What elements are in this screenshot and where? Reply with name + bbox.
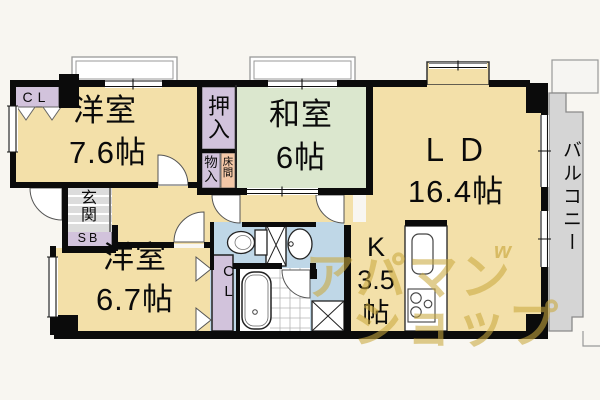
room-label-ld-size: 16.4帖 <box>378 174 534 210</box>
label-monoire: 物入 <box>202 156 220 184</box>
washer-pan-x-icon <box>312 301 344 331</box>
room-label-western2-size: 6.7帖 <box>60 282 210 318</box>
watermark-mark-icon: w <box>494 238 511 264</box>
watermark-line2: ショップ <box>352 300 560 350</box>
sliding-door-japanese-room <box>247 187 318 197</box>
label-entrance: 玄関 <box>78 191 100 225</box>
toilet-icon <box>228 230 268 255</box>
room-label-balcony: バルコニー <box>551 140 581 255</box>
room-label-japanese-name: 和室 <box>237 97 365 133</box>
bathtub-icon <box>242 272 271 329</box>
label-oshiire: 押入 <box>204 95 234 141</box>
label-tokonoma: 床間 <box>222 157 234 179</box>
room-label-western1-size: 7.6帖 <box>33 135 183 171</box>
room-label-japanese-size: 6帖 <box>237 140 365 176</box>
label-closet-lower: CL <box>207 263 237 303</box>
floor-plan-canvas: 洋室 7.6帖 押入 和室 6帖 物入 床間 ＬＤ 16.4帖 バルコニー 玄関… <box>0 0 600 400</box>
room-label-ld-name: ＬＤ <box>378 133 534 169</box>
linen-closet-x-icon <box>266 224 286 266</box>
bay-window-west-room-icon <box>72 57 177 83</box>
watermark-line1: アパマン <box>305 252 512 302</box>
label-closet-upper: CL <box>14 89 59 105</box>
room-label-western2-name: 洋室 <box>60 240 210 276</box>
